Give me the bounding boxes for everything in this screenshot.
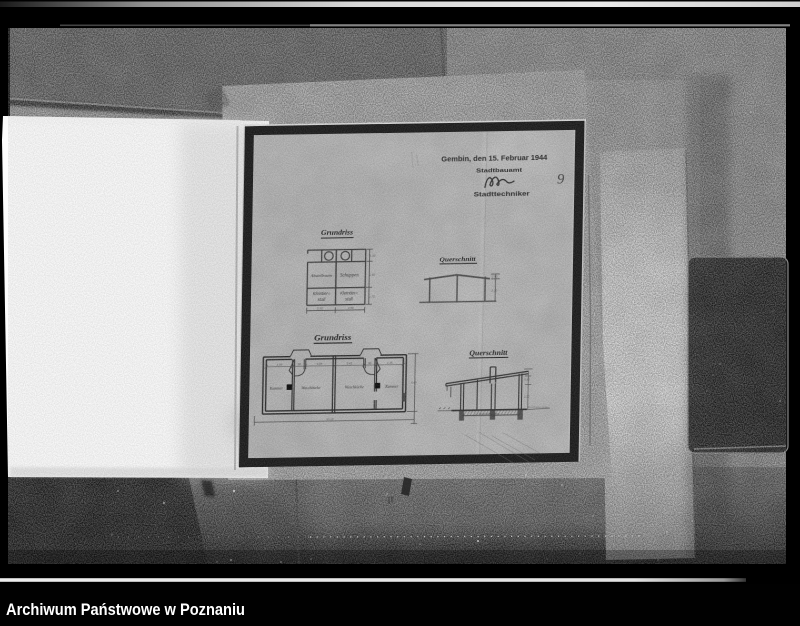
svg-text:Archiwum Państwowe w Poznaniu: Archiwum Państwowe w Poznaniu: [6, 601, 245, 619]
